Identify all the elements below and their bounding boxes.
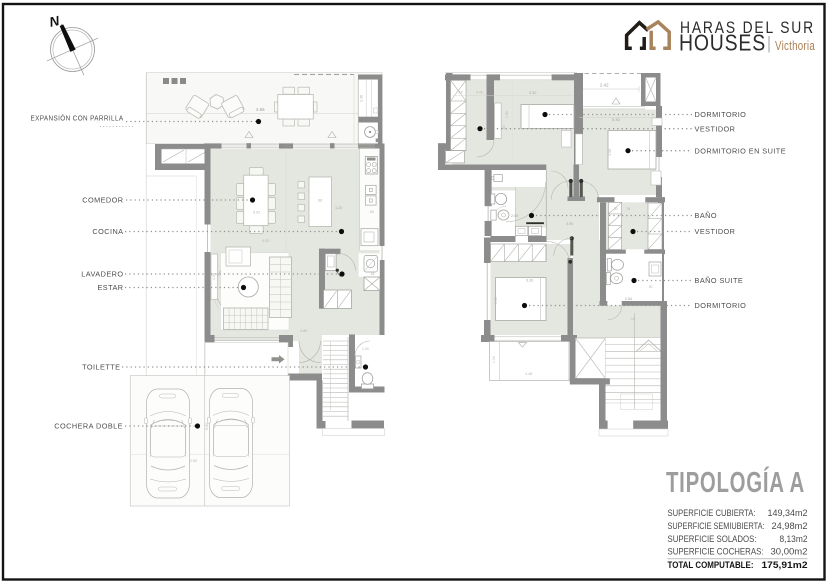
svg-text:3.30: 3.30 bbox=[526, 279, 533, 283]
svg-text:LAVADERO: LAVADERO bbox=[81, 270, 123, 279]
svg-text:1.93: 1.93 bbox=[505, 111, 509, 118]
svg-text:BAÑO SUITE: BAÑO SUITE bbox=[695, 276, 744, 285]
svg-text:DORMITORIO EN SUITE: DORMITORIO EN SUITE bbox=[695, 146, 787, 155]
svg-text:SUPERFICIE CUBIERTA:: SUPERFICIE CUBIERTA: bbox=[668, 508, 756, 518]
svg-text:.60: .60 bbox=[502, 125, 506, 130]
svg-text:2.50: 2.50 bbox=[190, 459, 197, 463]
svg-text:.96: .96 bbox=[317, 199, 322, 203]
svg-text:5.00: 5.00 bbox=[205, 423, 209, 430]
svg-text:.60: .60 bbox=[458, 91, 463, 95]
svg-text:3.30: 3.30 bbox=[529, 91, 536, 95]
svg-text:1.04: 1.04 bbox=[492, 356, 496, 363]
svg-text:DORMITORIO: DORMITORIO bbox=[695, 110, 747, 119]
svg-text:SUPERFICIE SEMIUBIERTA:: SUPERFICIE SEMIUBIERTA: bbox=[668, 521, 765, 531]
svg-text:4.45: 4.45 bbox=[476, 91, 483, 95]
svg-text:TOTAL COMPUTABLE:: TOTAL COMPUTABLE: bbox=[668, 560, 754, 570]
svg-text:2.54: 2.54 bbox=[625, 297, 632, 301]
svg-text:COCHERA DOBLE: COCHERA DOBLE bbox=[54, 422, 123, 431]
svg-text:.16: .16 bbox=[630, 317, 635, 321]
svg-text:DORMITORIO: DORMITORIO bbox=[695, 301, 747, 310]
svg-text:BAÑO: BAÑO bbox=[695, 211, 717, 220]
svg-text:COMEDOR: COMEDOR bbox=[82, 196, 123, 205]
svg-text:5.30: 5.30 bbox=[612, 117, 621, 122]
svg-text:.90: .90 bbox=[648, 285, 653, 289]
svg-text:COCINA: COCINA bbox=[92, 227, 123, 236]
svg-text:TOILETTE: TOILETTE bbox=[82, 363, 120, 372]
svg-text:EXPANSIÓN CON PARRILLA: EXPANSIÓN CON PARRILLA bbox=[31, 113, 124, 122]
svg-text:2.00: 2.00 bbox=[511, 214, 518, 218]
svg-text:4.00: 4.00 bbox=[262, 239, 269, 243]
svg-text:Victhoria: Victhoria bbox=[775, 39, 815, 53]
svg-text:1.40: 1.40 bbox=[360, 95, 364, 102]
svg-text:175,91m2: 175,91m2 bbox=[762, 560, 808, 570]
svg-text:.94: .94 bbox=[626, 207, 631, 211]
svg-text:2.42: 2.42 bbox=[600, 83, 609, 88]
svg-text:1.93: 1.93 bbox=[494, 297, 498, 304]
svg-text:SUPERFICIE SOLADOS:: SUPERFICIE SOLADOS: bbox=[668, 534, 757, 544]
svg-text:.64: .64 bbox=[370, 272, 375, 276]
svg-text:2.56: 2.56 bbox=[256, 107, 265, 112]
svg-text:TIPOLOGÍA A: TIPOLOGÍA A bbox=[666, 467, 805, 499]
svg-text:.60: .60 bbox=[613, 207, 618, 211]
svg-text:SUPERFICIE COCHERAS:: SUPERFICIE COCHERAS: bbox=[668, 546, 764, 556]
svg-text:4.30: 4.30 bbox=[608, 149, 612, 156]
svg-text:3.90: 3.90 bbox=[566, 222, 573, 226]
svg-text:ESTAR: ESTAR bbox=[97, 283, 123, 292]
svg-text:VESTIDOR: VESTIDOR bbox=[695, 227, 736, 236]
svg-text:30,00m2: 30,00m2 bbox=[771, 546, 808, 556]
svg-text:HOUSES: HOUSES bbox=[679, 30, 766, 56]
svg-text:149,34m2: 149,34m2 bbox=[768, 508, 808, 518]
svg-text:4.85: 4.85 bbox=[300, 329, 307, 333]
svg-text:8,13m2: 8,13m2 bbox=[780, 534, 808, 544]
svg-text:5.02: 5.02 bbox=[253, 211, 260, 215]
svg-text:4.60: 4.60 bbox=[283, 144, 290, 148]
svg-text:1.00: 1.00 bbox=[362, 347, 369, 351]
svg-text:.60: .60 bbox=[369, 210, 374, 214]
svg-text:24,98m2: 24,98m2 bbox=[772, 521, 808, 531]
svg-text:VESTIDOR: VESTIDOR bbox=[695, 124, 736, 133]
svg-text:1.10: 1.10 bbox=[525, 372, 532, 376]
svg-text:1.20: 1.20 bbox=[335, 206, 342, 210]
